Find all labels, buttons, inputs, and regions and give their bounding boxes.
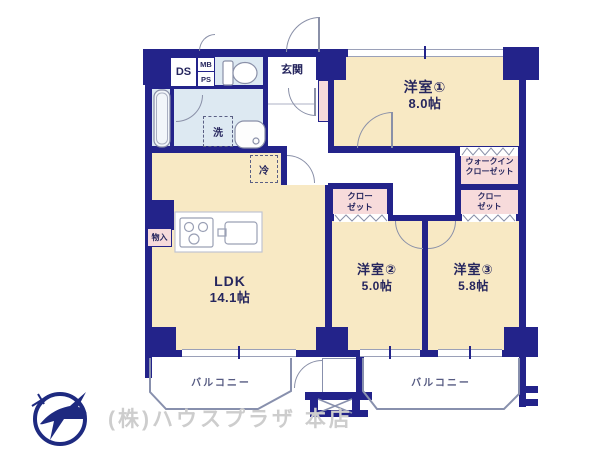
balcony-right-label: バルコニー — [362, 377, 520, 390]
room-label-western1: 洋室① 8.0帖 — [355, 78, 495, 113]
label-line: バルコニー — [191, 378, 251, 389]
room-name: 洋室① — [355, 78, 495, 96]
logo-accent — [32, 394, 48, 406]
balcony-left-label: バルコニー — [150, 377, 292, 390]
meter-box: MB — [197, 57, 215, 72]
refrigerator-space: 冷 — [250, 155, 278, 183]
wall — [458, 185, 520, 189]
hatch-room — [322, 358, 360, 395]
room-size: 5.0帖 — [332, 279, 422, 295]
duct-space-label: DS — [176, 66, 191, 78]
room-size: 5.8帖 — [428, 279, 519, 295]
wall — [325, 185, 332, 352]
laundry-label: 洗 — [213, 124, 223, 139]
room-label-closet-right: クロー ゼット — [461, 192, 518, 213]
wall-block — [316, 49, 346, 80]
wall — [388, 185, 393, 218]
label-line: クロー — [332, 191, 388, 202]
storage-box: 物入 — [147, 228, 172, 247]
label-line: ウォークイン — [461, 157, 518, 167]
window-tick — [238, 346, 240, 359]
wall — [170, 89, 174, 150]
wall — [328, 183, 393, 188]
front-door-leaf — [318, 17, 320, 52]
hatch-wall — [356, 356, 364, 396]
laundry-space: 洗 — [203, 116, 233, 147]
room-label-ldk: LDK 14.1帖 — [165, 272, 295, 307]
duct-space-box: DS — [170, 57, 197, 87]
floor-plan: DS MB PS 洗 冷 物入 洋室① 8.0帖 LDK 14.1帖 洋室② 5… — [0, 0, 600, 450]
room-name: 玄関 — [281, 64, 303, 76]
company-watermark: (株)ハウスプラザ 本店 — [108, 403, 353, 433]
room-label-walk-in-closet: ウォークイン クローゼット — [461, 157, 518, 178]
balcony-divider — [526, 399, 538, 406]
storage-label: 物入 — [152, 232, 168, 243]
room-size: 14.1帖 — [165, 290, 295, 307]
entrance-door-leaf — [314, 88, 316, 116]
room-label-western2: 洋室② 5.0帖 — [332, 262, 422, 294]
wall-pillar — [316, 327, 348, 357]
wall — [519, 78, 526, 330]
logo-circle — [35, 394, 85, 444]
meter-box-label: MB — [200, 60, 212, 69]
hallway-floor — [393, 153, 455, 218]
logo-bird-icon — [40, 392, 87, 440]
wall — [519, 357, 526, 407]
label-line: ゼット — [461, 202, 518, 212]
room-name: 洋室② — [332, 262, 422, 279]
label-line: ゼット — [332, 202, 388, 213]
room-name: 洋室③ — [428, 262, 519, 279]
wall — [328, 80, 334, 153]
room-label-western3: 洋室③ 5.8帖 — [428, 262, 519, 294]
room-label-closet-mid: クロー ゼット — [332, 191, 388, 213]
pipe-space-label: PS — [201, 75, 211, 84]
window-tick — [389, 346, 391, 359]
window-tick — [424, 46, 426, 59]
meter-door-arc — [199, 34, 215, 51]
room-size: 8.0帖 — [355, 96, 495, 113]
hatch-door-arc — [294, 360, 322, 388]
room-label-entrance: 玄関 — [268, 63, 316, 77]
balcony-divider — [526, 386, 538, 393]
pipe-space-box: PS — [197, 71, 215, 87]
room-name: LDK — [165, 272, 295, 290]
window-tick — [469, 346, 471, 359]
wall-block — [146, 200, 174, 230]
refrigerator-label: 冷 — [259, 162, 269, 177]
front-door-arc — [286, 17, 320, 52]
wall — [145, 357, 152, 378]
label-line: クローゼット — [461, 167, 518, 177]
wall-pillar — [503, 47, 539, 80]
wall — [145, 146, 287, 153]
company-logo — [32, 392, 87, 444]
label-line: バルコニー — [411, 378, 471, 389]
label-line: クロー — [461, 192, 518, 202]
western1-door-leaf — [391, 112, 393, 148]
